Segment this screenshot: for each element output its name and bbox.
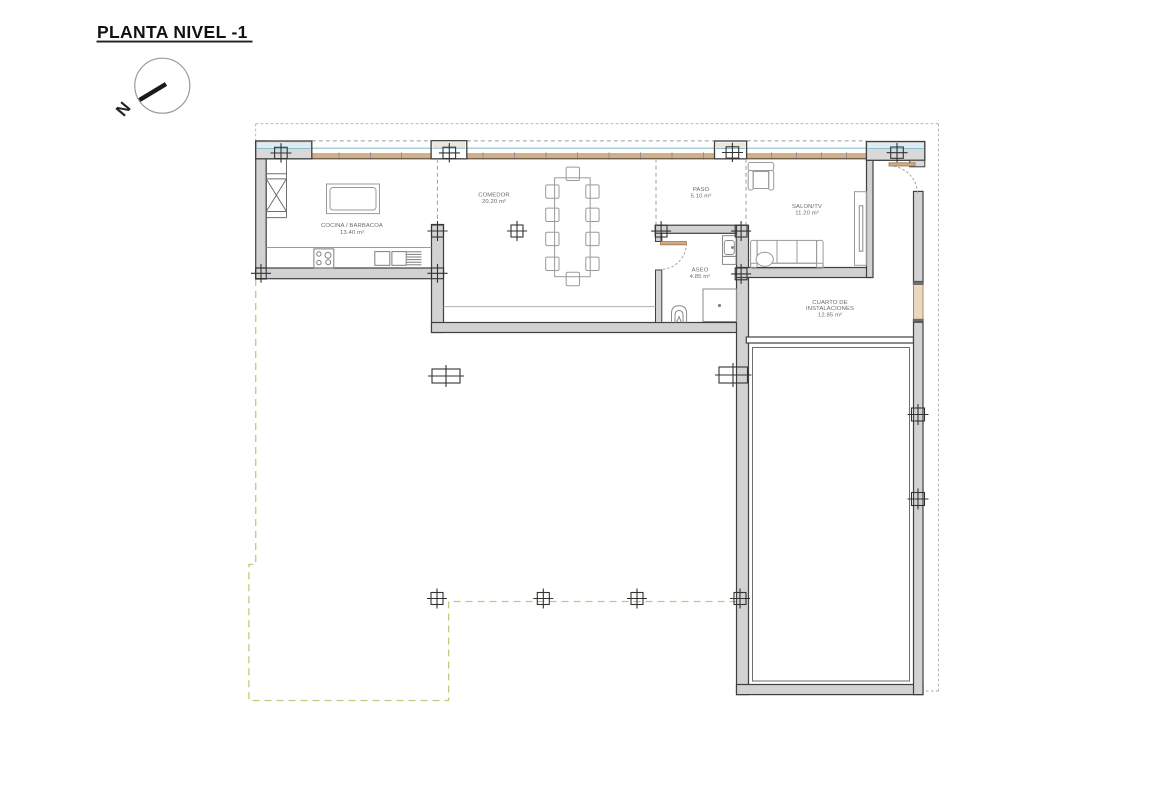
svg-text:N: N (112, 98, 134, 120)
svg-text:COMEDOR: COMEDOR (478, 193, 509, 199)
svg-text:4.85 m²: 4.85 m² (690, 274, 711, 280)
svg-text:SALON/TV: SALON/TV (792, 204, 822, 210)
svg-text:INSTALACIONES: INSTALACIONES (806, 306, 854, 312)
svg-text:20.20 m²: 20.20 m² (482, 199, 506, 205)
svg-text:12.85 m²: 12.85 m² (818, 313, 842, 319)
svg-text:PASO: PASO (693, 187, 710, 193)
svg-text:PLANTA NIVEL -1: PLANTA NIVEL -1 (97, 22, 248, 42)
svg-text:13.40 m²: 13.40 m² (340, 230, 364, 236)
svg-text:COCINA / BARBACOA: COCINA / BARBACOA (321, 223, 383, 229)
svg-text:5.10 m²: 5.10 m² (691, 194, 712, 200)
svg-text:ASEO: ASEO (692, 268, 709, 274)
svg-text:11.20 m²: 11.20 m² (795, 211, 819, 217)
